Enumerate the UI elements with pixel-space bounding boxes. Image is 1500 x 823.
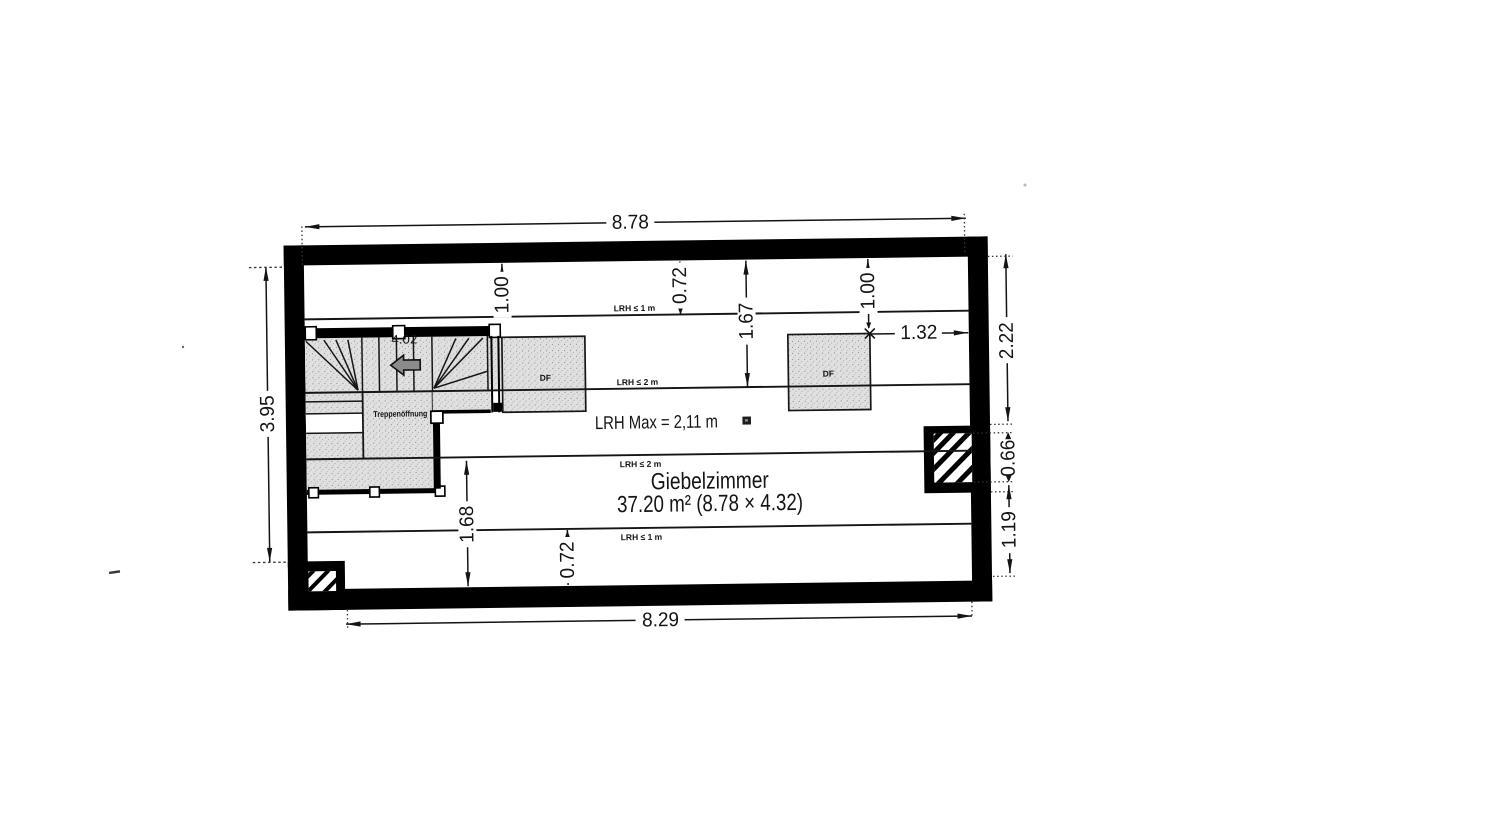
svg-text:0.72: 0.72 bbox=[557, 541, 579, 578]
svg-text:LRH Max = 2,11 m: LRH Max = 2,11 m bbox=[595, 410, 718, 433]
svg-text:1.00: 1.00 bbox=[857, 272, 879, 309]
svg-text:1.19: 1.19 bbox=[998, 511, 1020, 548]
svg-text:2.22: 2.22 bbox=[996, 322, 1018, 359]
svg-text:Treppenöffnung: Treppenöffnung bbox=[373, 408, 427, 419]
svg-text:8.29: 8.29 bbox=[642, 609, 679, 631]
svg-text:3.95: 3.95 bbox=[257, 395, 279, 432]
svg-text:0.66: 0.66 bbox=[997, 440, 1019, 477]
svg-text:1.68: 1.68 bbox=[456, 506, 478, 543]
svg-text:0.72: 0.72 bbox=[669, 267, 691, 304]
svg-text:8.78: 8.78 bbox=[612, 211, 649, 233]
svg-text:DF: DF bbox=[823, 368, 834, 378]
svg-text:LRH ≤ 2 m: LRH ≤ 2 m bbox=[617, 377, 659, 388]
svg-text:1.32: 1.32 bbox=[900, 322, 937, 344]
svg-text:LRH ≤ 1 m: LRH ≤ 1 m bbox=[614, 303, 656, 314]
svg-text:37.20 m² (8.78 × 4.32): 37.20 m² (8.78 × 4.32) bbox=[617, 489, 803, 517]
svg-text:LRH ≤ 1 m: LRH ≤ 1 m bbox=[621, 532, 663, 543]
svg-text:4.02: 4.02 bbox=[391, 332, 417, 346]
svg-text:1.00: 1.00 bbox=[491, 276, 513, 313]
svg-text:1.67: 1.67 bbox=[735, 302, 757, 339]
svg-text:DF: DF bbox=[540, 373, 551, 383]
